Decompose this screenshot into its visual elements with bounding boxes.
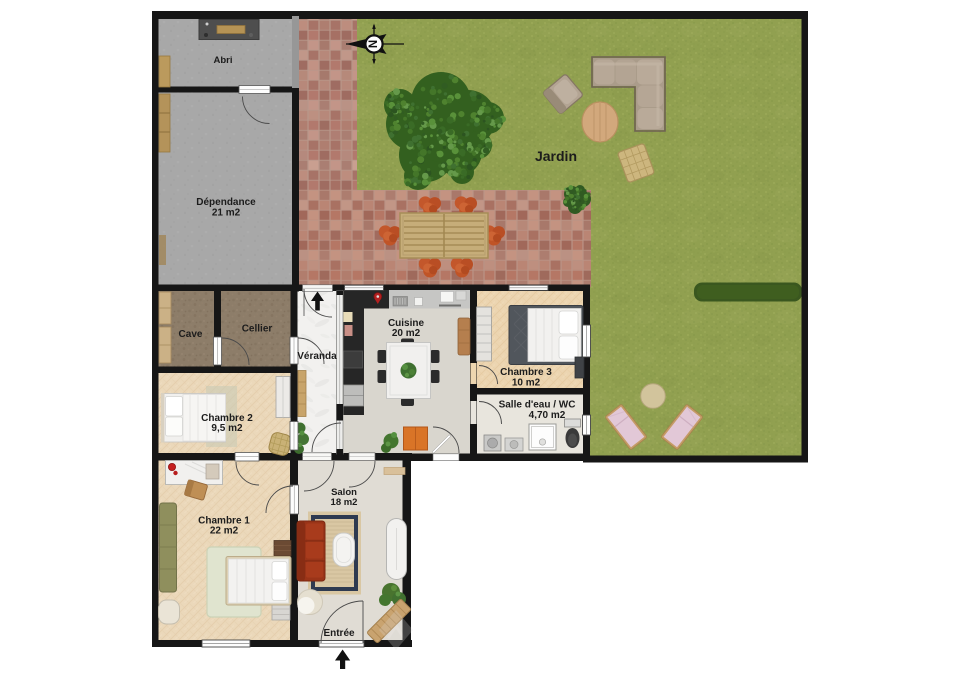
svg-text:Dépendance: Dépendance [196,197,256,208]
svg-text:20 m2: 20 m2 [392,328,421,339]
svg-text:Jardin: Jardin [535,148,577,164]
svg-text:18 m2: 18 m2 [331,497,358,508]
svg-text:Abri: Abri [214,55,233,66]
svg-text:4,70 m2: 4,70 m2 [529,410,566,421]
svg-text:N: N [368,40,380,48]
svg-text:Entrée: Entrée [323,628,355,639]
svg-text:Chambre 3: Chambre 3 [500,367,552,378]
svg-text:10 m2: 10 m2 [512,378,541,389]
svg-text:9,5 m2: 9,5 m2 [211,423,243,434]
svg-text:Cellier: Cellier [242,324,273,335]
svg-text:Véranda: Véranda [297,351,337,362]
svg-text:Cave: Cave [179,329,203,340]
svg-text:22 m2: 22 m2 [210,526,239,537]
svg-text:21 m2: 21 m2 [212,208,241,219]
svg-text:Salle d'eau / WC: Salle d'eau / WC [499,400,576,411]
